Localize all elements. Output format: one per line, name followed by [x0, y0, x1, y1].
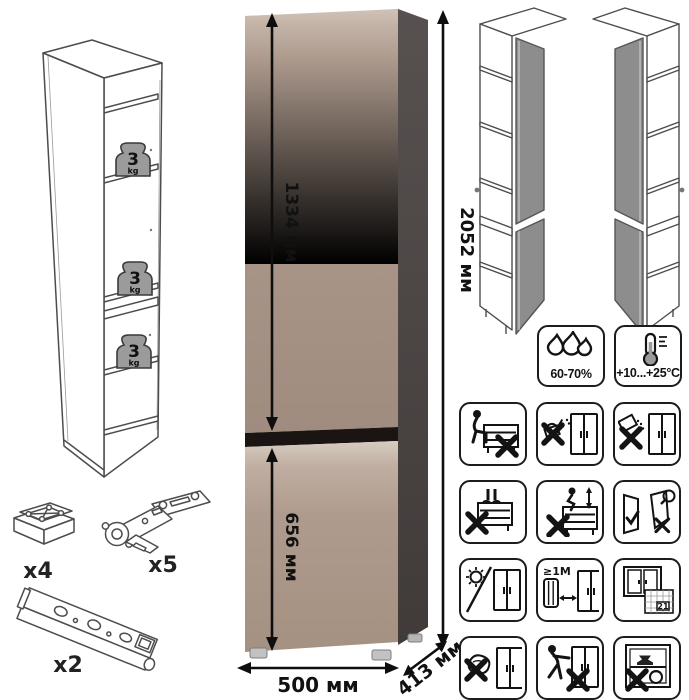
care-box-no-standing: [459, 480, 527, 544]
svg-text:kg: kg: [128, 359, 139, 368]
min-distance-label: ≥1M: [543, 565, 571, 578]
care-box-no-overloading: [613, 636, 681, 700]
rail-drawing: [13, 586, 164, 672]
care-box-no-sitting: [459, 402, 527, 466]
cabinet-upper-door: [245, 10, 398, 433]
foot-glide-drawing: [14, 503, 74, 544]
door-alignment-icon: [618, 487, 676, 537]
wireframe-cabinet-doors-left: [475, 8, 566, 334]
rail-qty: x2: [53, 653, 83, 678]
no-spilling-icon: [618, 409, 676, 459]
humidity-drops-icon: [543, 331, 599, 367]
hinge-drawing: [102, 491, 210, 553]
dim-lower-section: 656 мм: [281, 512, 301, 581]
cabinet-foot: [408, 634, 422, 642]
no-wet-cloth-icon: [464, 643, 522, 693]
wireframe-cabinet-doors-right: [593, 8, 684, 334]
dim-total-height: 2052 мм: [456, 207, 477, 293]
wireframe-cabinet-shelves: [43, 40, 162, 477]
care-box-no-jumping: [536, 480, 604, 544]
care-box-heat-distance: ≥1M: [536, 558, 604, 622]
no-jumping-icon: [541, 487, 599, 537]
ventilation-calendar-icon: 21: [618, 565, 676, 615]
cabinet-lower-door: [245, 441, 398, 652]
care-box-ventilation: 21: [613, 558, 681, 622]
care-box-no-wet-cloth: [459, 636, 527, 700]
heat-distance-icon: ≥1M: [541, 565, 599, 615]
dim-upper-section: 1334 мм: [281, 181, 301, 262]
humidity-condition-box: 60-70%: [537, 325, 605, 387]
hinge-qty: x5: [148, 553, 178, 578]
foot-glide-qty: x4: [23, 559, 53, 584]
care-box-no-spilling: [613, 402, 681, 466]
no-dragging-icon: [541, 643, 599, 693]
no-sunlight-icon: [464, 565, 522, 615]
product-dimension-diagram: 3 kg 3 kg 3 kg x4: [0, 0, 689, 700]
humidity-range-label: 60-70%: [550, 368, 591, 381]
cabinet-side-face: [398, 9, 428, 645]
shelf-weight-2: 3 kg: [118, 262, 152, 295]
svg-text:kg: kg: [129, 286, 140, 295]
shelf-weight-unit: kg: [127, 167, 138, 176]
cabinet-foot: [250, 648, 267, 658]
cabinet-foot: [372, 650, 391, 660]
no-watering-icon: [541, 409, 599, 459]
no-standing-icon: [464, 487, 522, 537]
care-box-door-alignment: [613, 480, 681, 544]
care-box-no-dragging: [536, 636, 604, 700]
calendar-day-label: 21: [657, 602, 669, 611]
shelf-weight-1: 3 kg: [116, 143, 150, 176]
care-box-no-sunlight: [459, 558, 527, 622]
thermometer-icon: [620, 332, 676, 366]
temperature-condition-box: +10...+25°C: [614, 325, 682, 387]
shelf-weight-3: 3 kg: [117, 335, 151, 368]
care-box-no-liquids: [536, 402, 604, 466]
no-sitting-icon: [464, 409, 522, 459]
no-overloading-icon: [618, 643, 676, 693]
temperature-range-label: +10...+25°C: [616, 367, 680, 380]
dim-depth: 413 мм: [393, 636, 467, 700]
dim-width: 500 мм: [277, 673, 358, 697]
